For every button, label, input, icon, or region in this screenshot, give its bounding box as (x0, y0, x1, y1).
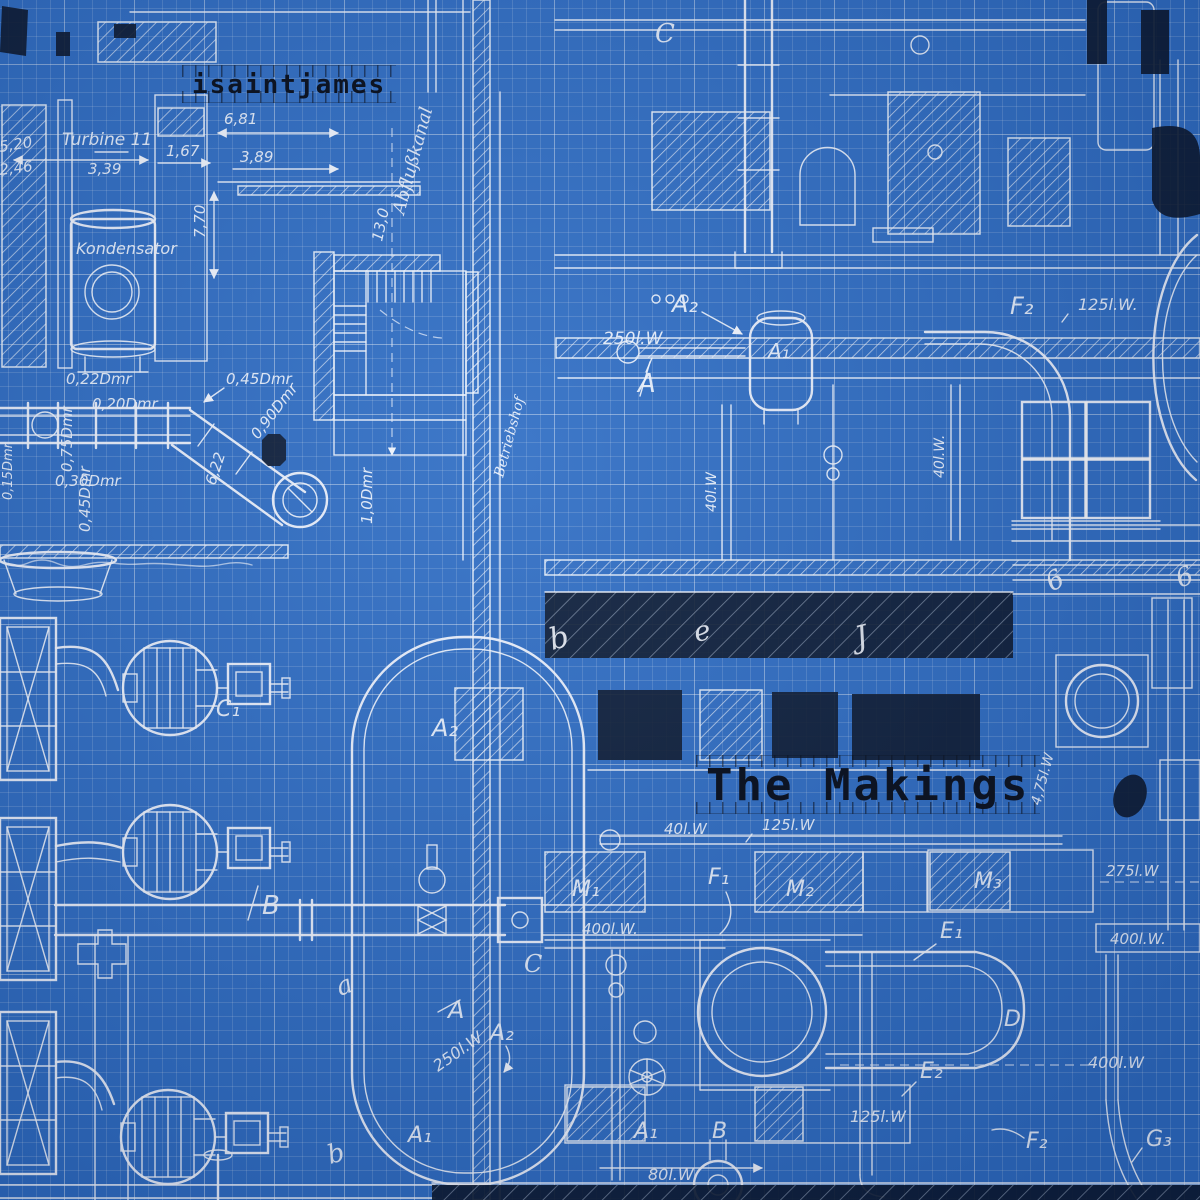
tag-a2-mid: A₂ (430, 714, 458, 742)
flow-125-top: 125l.W. (1078, 295, 1138, 314)
tag-f1: F₁ (708, 865, 729, 890)
dim-6-81: 6,81 (224, 110, 257, 128)
tag-a1-top: A₁ (766, 339, 790, 363)
dim-3-39: 3,39 (88, 160, 121, 178)
tag-c-top: C (655, 19, 675, 49)
betriebshof-label: Betriebshof (491, 393, 529, 480)
dmr-0-20: 0,20Dmr (92, 395, 159, 413)
flow-40-v2: 40l.W. (932, 435, 948, 478)
tag-g3: G₃ (1146, 1127, 1172, 1152)
dmr-0-45b: 0,45Dmr (76, 465, 94, 532)
tag-m1: M₁ (572, 877, 600, 902)
condenser-section-a: A₂ 250l.W A₁ A F₂ 125l.W. 40l.W. 40l.W (558, 290, 1200, 560)
tag-f2-top: F₂ (1010, 292, 1034, 320)
dim-6-22: 6,22 (202, 450, 229, 487)
artist-title: isaintjames (192, 70, 386, 100)
tag-b-bottom: B (712, 1119, 727, 1144)
machine-hall-section: C (555, 0, 1200, 480)
dim-7-70: 7,70 (191, 205, 209, 238)
flow-400-box: 400l.W. (1110, 930, 1166, 948)
tag-c-cursive: C (524, 950, 542, 978)
ground-band-left (0, 545, 288, 601)
dim-3-89: 3,89 (240, 148, 273, 166)
turbine-label: Turbine 11 (62, 130, 152, 150)
dim-1-67: 1,67 (166, 142, 200, 160)
tag-a1-bottom: A₁ (632, 1119, 658, 1144)
flow-400-left: 400l.W. (582, 920, 638, 938)
kondensator-label: Kondensator (76, 239, 178, 258)
letter-a-rot: a (332, 969, 357, 1002)
tag-m2: M₂ (786, 877, 814, 902)
flow-40-bottom: 40l.W (664, 820, 708, 838)
kondensator-vessel: Kondensator (71, 210, 178, 372)
dmr-0-22: 0,22Dmr (66, 370, 133, 388)
bottom-foundation-band (432, 1183, 1200, 1200)
tag-d: D (1004, 1007, 1021, 1032)
tag-m3: M₃ (974, 869, 1002, 894)
tag-a2-top: A₂ (670, 290, 698, 318)
flow-275: 275l.W (1106, 862, 1160, 880)
flow-125-bottom: 125l.W (850, 1107, 907, 1126)
dmr-0-75: 0,75Dmr (58, 405, 76, 472)
album-title: The Makings (706, 760, 1030, 811)
artist-name-text: isaintjames (192, 70, 386, 100)
tag-e1: E₁ (940, 919, 963, 944)
abflusskanal-label: Abflußkanal (388, 105, 437, 219)
stairwell-plan (314, 252, 478, 455)
tag-a2-bottom: A₂ (488, 1021, 514, 1046)
flow-250-top: 250l.W (603, 329, 664, 349)
blueprint-drawing: 5,20 2,46 Turbine 11 3,39 1,67 6,81 3,89… (0, 0, 1200, 1200)
central-wall (463, 0, 500, 1200)
foundation-band: b e J 6 6 (455, 560, 1200, 770)
letter-b-rot: b (324, 1137, 348, 1170)
flow-4-75: 4,75l.W (1028, 750, 1058, 807)
album-cover: 5,20 2,46 Turbine 11 3,39 1,67 6,81 3,89… (0, 0, 1200, 1200)
dmr-0-90: 0,90Dmr (247, 379, 302, 443)
tag-a1-bottom-left: A₁ (406, 1123, 432, 1148)
dmr-0-15: 0,15Dmr (1, 441, 16, 500)
tag-e2: E₂ (920, 1059, 943, 1084)
tag-a-mid: A (446, 996, 464, 1024)
dmr-1-0: 1,0Dmr (358, 467, 376, 524)
flow-40-v1: 40l.W (704, 471, 720, 512)
tag-c1: C₁ (216, 697, 240, 722)
album-title-text: The Makings (706, 760, 1030, 811)
flow-125-mid: 125l.W (762, 816, 816, 834)
tag-f2-bottom: F₂ (1026, 1129, 1048, 1154)
flow-400-right: 400l.W (1088, 1053, 1145, 1072)
